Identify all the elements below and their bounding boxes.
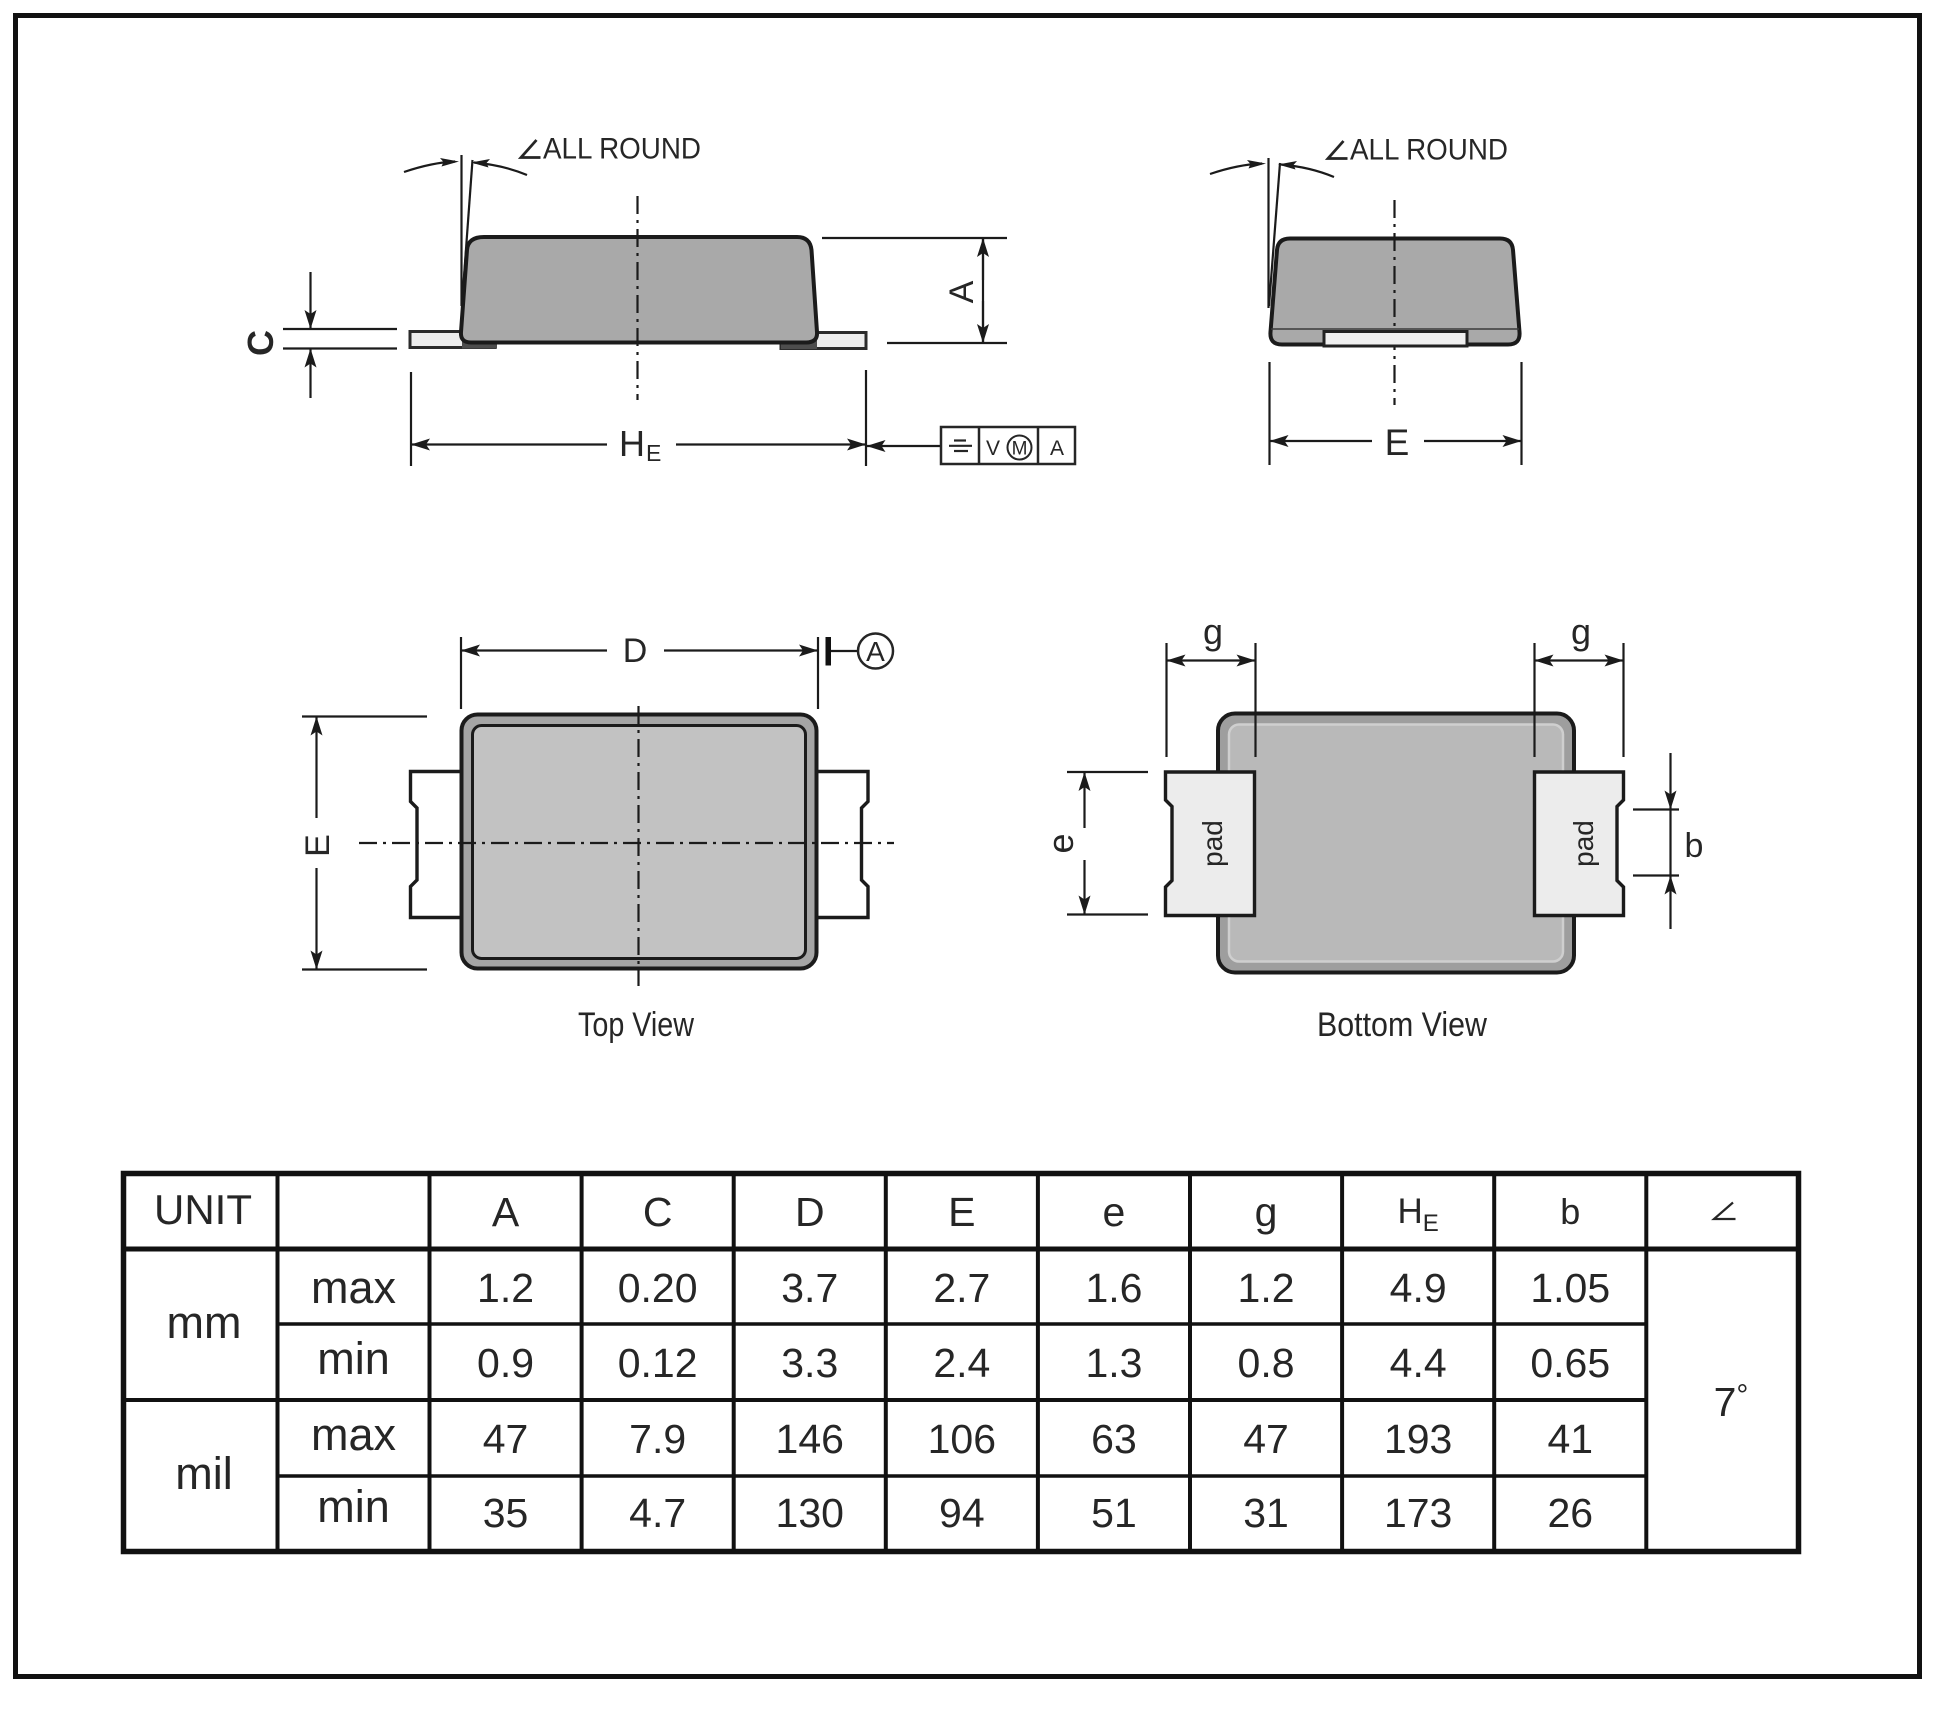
svg-text:1.05: 1.05 [1530,1265,1610,1311]
svg-text:3.7: 3.7 [781,1265,838,1311]
svg-text:0.12: 0.12 [618,1340,698,1386]
svg-text:1.2: 1.2 [477,1265,534,1311]
svg-text:Bottom View: Bottom View [1317,1006,1487,1044]
svg-text:D: D [795,1189,825,1235]
svg-text:max: max [311,1409,397,1460]
svg-text:0.8: 0.8 [1238,1340,1295,1386]
svg-text:b: b [1685,827,1704,865]
svg-text:min: min [317,1481,390,1532]
svg-text:31: 31 [1243,1490,1289,1536]
svg-text:106: 106 [928,1416,996,1462]
svg-text:V: V [986,437,1000,460]
svg-text:UNIT: UNIT [154,1186,252,1233]
svg-text:47: 47 [1243,1416,1289,1462]
svg-text:E: E [299,834,337,857]
svg-text:g: g [1203,611,1223,652]
svg-text:63: 63 [1091,1416,1137,1462]
svg-text:H: H [619,423,645,464]
svg-text:4.9: 4.9 [1390,1265,1447,1311]
svg-text:pad: pad [1197,820,1228,867]
svg-text:173: 173 [1384,1490,1452,1536]
svg-text:26: 26 [1547,1490,1593,1536]
svg-text:C: C [643,1189,673,1235]
svg-text:0.20: 0.20 [618,1265,698,1311]
svg-text:41: 41 [1547,1416,1593,1462]
svg-text:b: b [1560,1191,1580,1232]
svg-text:g: g [1255,1189,1278,1235]
svg-text:A: A [866,636,885,667]
svg-text:7.9: 7.9 [629,1416,686,1462]
svg-text:E: E [646,440,661,466]
svg-text:A: A [943,280,981,303]
svg-text:mm: mm [167,1297,242,1348]
svg-text:2.4: 2.4 [933,1340,990,1386]
svg-text:A: A [492,1189,520,1235]
svg-text:D: D [623,632,648,670]
svg-text:193: 193 [1384,1416,1452,1462]
svg-text:7°: 7° [1714,1379,1749,1425]
svg-text:pad: pad [1568,820,1599,867]
svg-text:130: 130 [776,1490,844,1536]
svg-text:g: g [1571,611,1591,652]
svg-text:0.65: 0.65 [1530,1340,1610,1386]
svg-text:C: C [240,330,281,356]
svg-text:e: e [1103,1189,1126,1235]
svg-text:mil: mil [175,1448,232,1499]
svg-text:max: max [311,1262,397,1313]
svg-text:47: 47 [483,1416,529,1462]
svg-text:146: 146 [776,1416,844,1462]
svg-text:2.7: 2.7 [933,1265,990,1311]
svg-text:Top View: Top View [578,1006,694,1044]
svg-text:HE: HE [1398,1192,1439,1237]
svg-text:4.7: 4.7 [629,1490,686,1536]
svg-text:94: 94 [939,1490,985,1536]
svg-text:35: 35 [483,1490,529,1536]
svg-text:E: E [948,1189,975,1235]
svg-text:min: min [317,1333,390,1384]
svg-text:ALL ROUND: ALL ROUND [1350,134,1508,167]
svg-text:A: A [1050,437,1064,460]
svg-text:4.4: 4.4 [1390,1340,1447,1386]
svg-text:1.6: 1.6 [1085,1265,1142,1311]
svg-text:3.3: 3.3 [781,1340,838,1386]
svg-text:1.3: 1.3 [1085,1340,1142,1386]
svg-text:ALL ROUND: ALL ROUND [543,133,701,166]
svg-text:51: 51 [1091,1490,1137,1536]
svg-text:0.9: 0.9 [477,1340,534,1386]
svg-text:e: e [1040,833,1081,853]
svg-text:M: M [1012,439,1028,460]
svg-text:E: E [1385,422,1410,463]
svg-text:1.2: 1.2 [1238,1265,1295,1311]
